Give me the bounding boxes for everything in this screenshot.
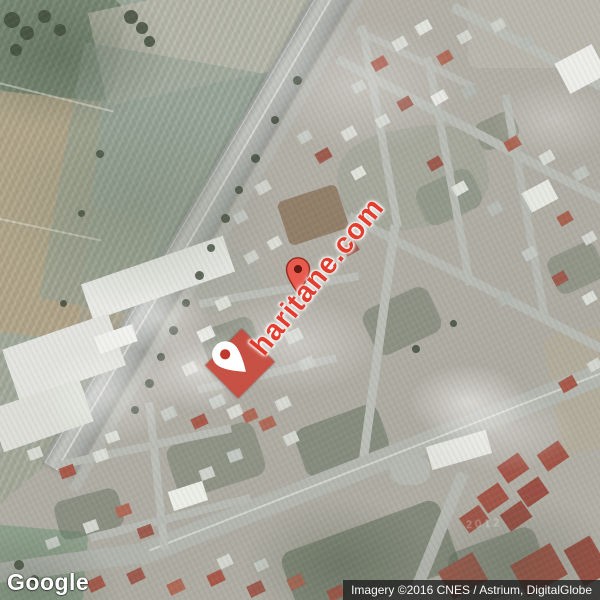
google-logo[interactable]: Google: [7, 569, 89, 596]
satellite-map-canvas[interactable]: 2012 haritane.com Google Imagery ©2016 C…: [0, 0, 600, 600]
ghost-year-label: 2012: [466, 517, 503, 532]
attribution-bar: Imagery ©2016 CNES / Astrium, DigitalGlo…: [343, 580, 600, 600]
attribution-text: Imagery ©2016 CNES / Astrium, DigitalGlo…: [351, 583, 592, 597]
